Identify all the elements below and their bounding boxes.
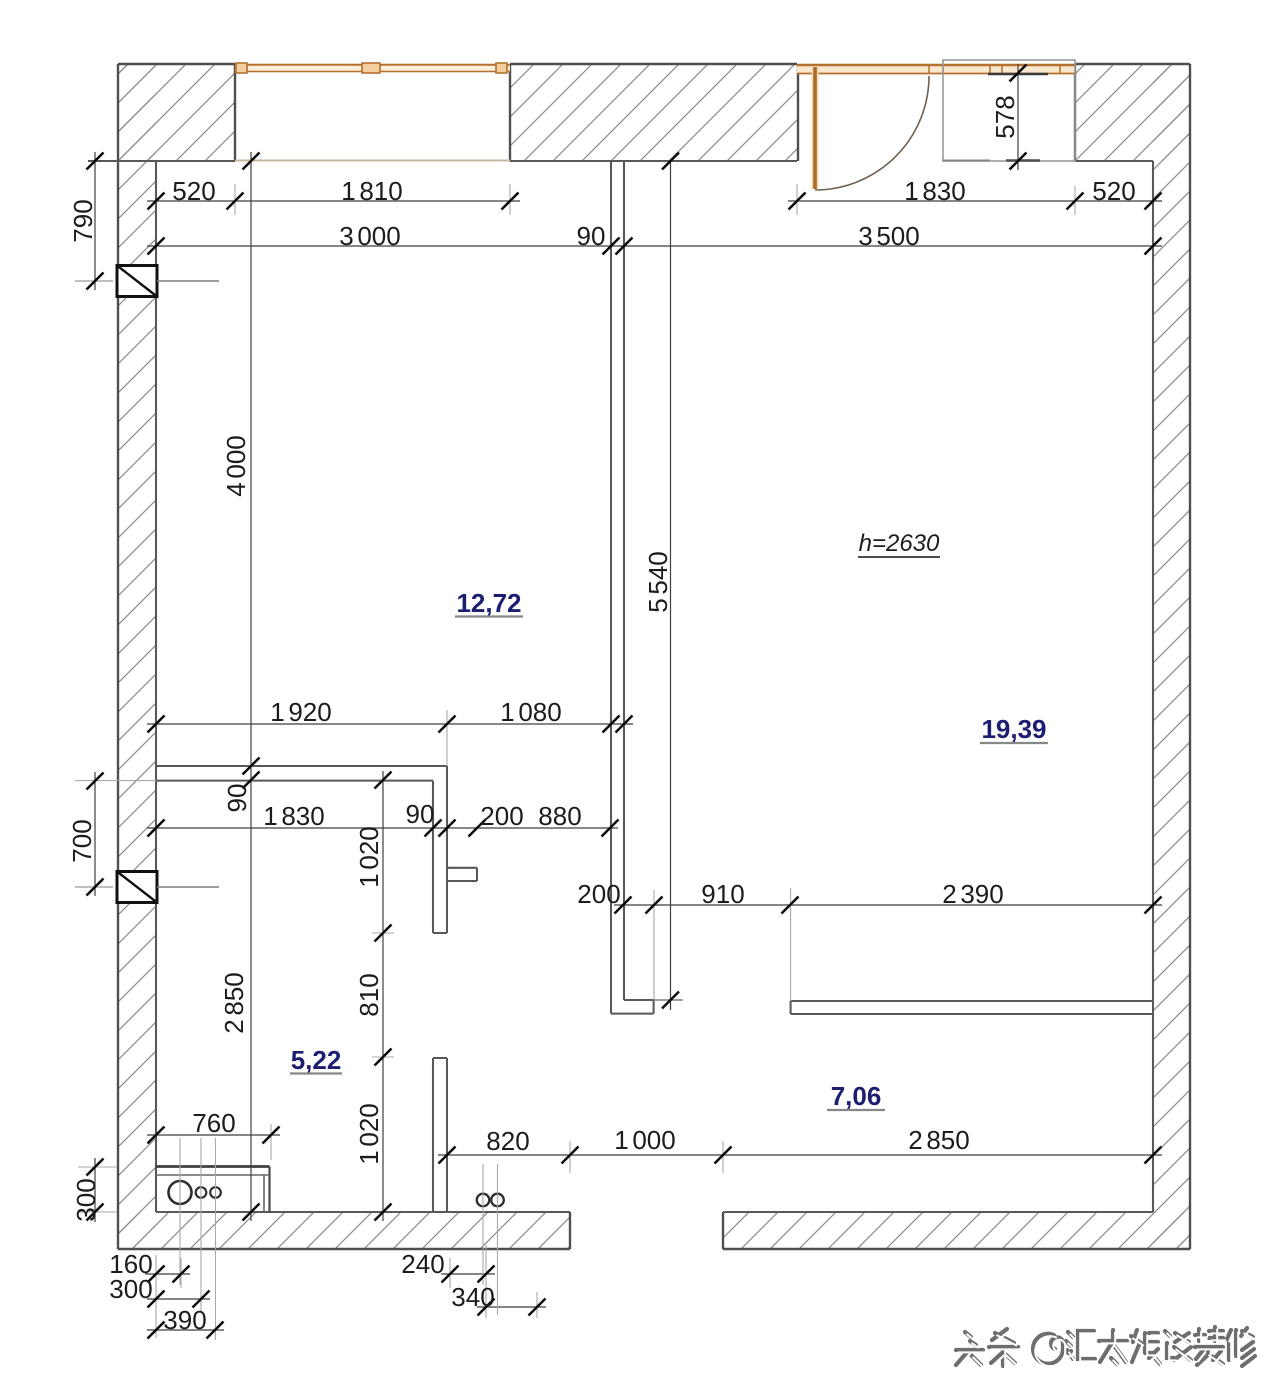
svg-text:700: 700: [67, 819, 97, 862]
svg-text:1 830: 1 830: [263, 801, 324, 831]
svg-text:1 020: 1 020: [354, 1103, 384, 1164]
svg-text:910: 910: [701, 879, 744, 909]
svg-text:4 000: 4 000: [221, 435, 251, 496]
svg-text:340: 340: [451, 1282, 494, 1312]
svg-text:7,06: 7,06: [831, 1081, 882, 1111]
svg-text:300: 300: [109, 1274, 152, 1304]
svg-text:578: 578: [990, 95, 1020, 138]
svg-text:90: 90: [577, 221, 606, 251]
svg-text:1 000: 1 000: [614, 1125, 675, 1155]
svg-text:19,39: 19,39: [981, 714, 1046, 744]
svg-text:1 020: 1 020: [354, 826, 384, 887]
svg-text:1 080: 1 080: [500, 697, 561, 727]
svg-text:810: 810: [354, 973, 384, 1016]
svg-text:760: 760: [192, 1108, 235, 1138]
svg-text:3 500: 3 500: [858, 221, 919, 251]
svg-text:5 540: 5 540: [643, 551, 673, 612]
svg-text:820: 820: [486, 1126, 529, 1156]
svg-text:200: 200: [577, 879, 620, 909]
svg-text:790: 790: [68, 199, 98, 242]
svg-text:90: 90: [406, 799, 435, 829]
svg-text:90: 90: [222, 784, 252, 813]
svg-text:3 000: 3 000: [339, 221, 400, 251]
svg-text:1 810: 1 810: [341, 176, 402, 206]
svg-text:240: 240: [401, 1249, 444, 1279]
svg-text:2 850: 2 850: [219, 972, 249, 1033]
svg-text:520: 520: [172, 176, 215, 206]
svg-text:1 830: 1 830: [904, 176, 965, 206]
svg-text:520: 520: [1092, 176, 1135, 206]
svg-text:2 850: 2 850: [908, 1125, 969, 1155]
svg-text:390: 390: [163, 1305, 206, 1335]
svg-text:h=2630: h=2630: [859, 530, 940, 557]
svg-text:300: 300: [71, 1178, 101, 1221]
svg-text:2 390: 2 390: [942, 879, 1003, 909]
svg-text:1 920: 1 920: [270, 697, 331, 727]
svg-text:880: 880: [538, 801, 581, 831]
svg-text:200: 200: [480, 801, 523, 831]
svg-text:5,22: 5,22: [291, 1045, 342, 1075]
svg-text:12,72: 12,72: [456, 588, 521, 618]
